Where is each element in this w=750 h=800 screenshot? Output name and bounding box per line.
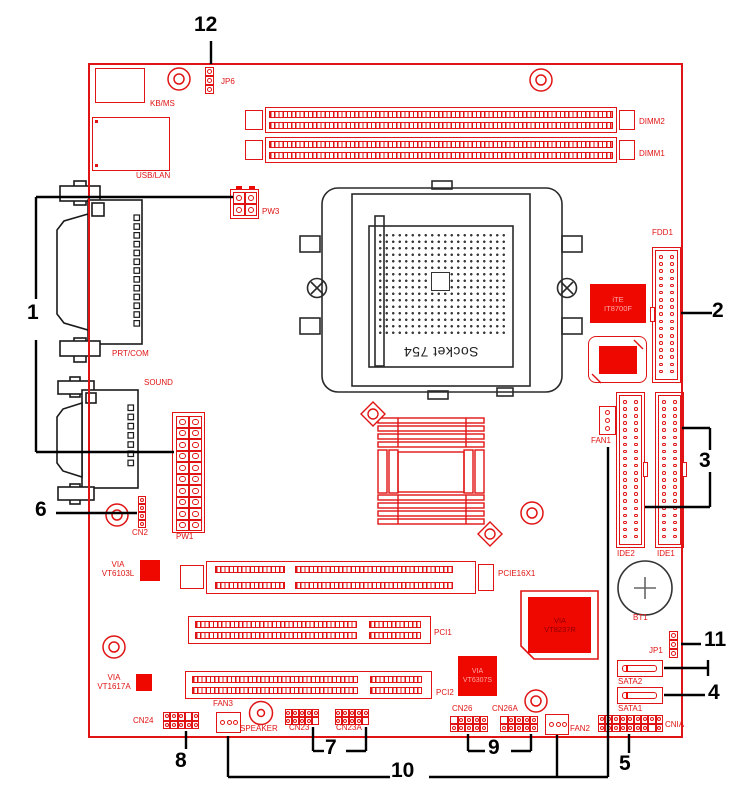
callout-number-12: 12 — [194, 14, 217, 36]
callout-lines — [0, 0, 750, 800]
callout-number-2: 2 — [712, 300, 724, 322]
callout-number-4: 4 — [708, 682, 720, 704]
callout-number-7: 7 — [325, 737, 337, 759]
callout-number-1: 1 — [27, 302, 39, 324]
callout-number-10: 10 — [391, 760, 414, 782]
callout-number-9: 9 — [488, 737, 500, 759]
callout-number-5: 5 — [619, 753, 631, 775]
callout-number-6: 6 — [35, 499, 47, 521]
callout-number-8: 8 — [175, 750, 187, 772]
callout-number-3: 3 — [699, 450, 711, 472]
callout-number-11: 11 — [704, 629, 726, 651]
motherboard-diagram: iTE IT8700F VIA VT8237R VIA VT6307S Sock… — [0, 0, 750, 800]
